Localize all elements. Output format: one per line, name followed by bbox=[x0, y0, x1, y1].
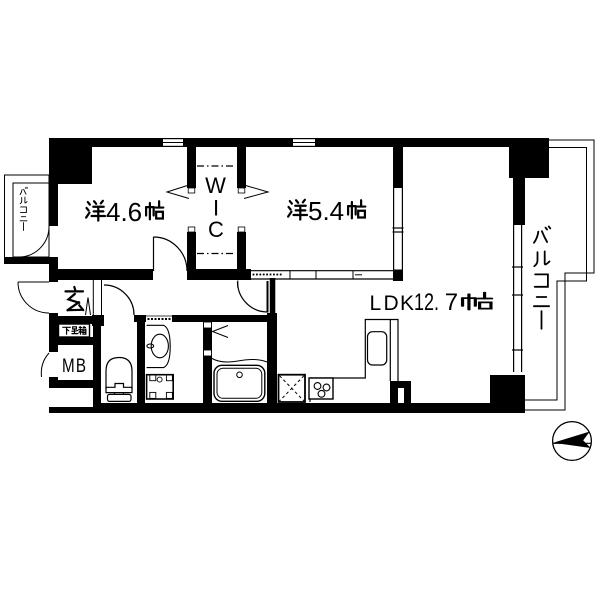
svg-text:K: K bbox=[400, 292, 414, 315]
svg-text:C: C bbox=[208, 217, 224, 242]
svg-text:12.: 12. bbox=[414, 290, 439, 316]
svg-text:L: L bbox=[370, 292, 382, 315]
svg-text:5.4: 5.4 bbox=[308, 196, 344, 226]
svg-text:D: D bbox=[384, 292, 399, 315]
svg-text:4.6: 4.6 bbox=[106, 197, 142, 227]
svg-text:7: 7 bbox=[445, 289, 458, 316]
svg-text:W: W bbox=[205, 173, 226, 198]
svg-text:MB: MB bbox=[62, 354, 87, 376]
